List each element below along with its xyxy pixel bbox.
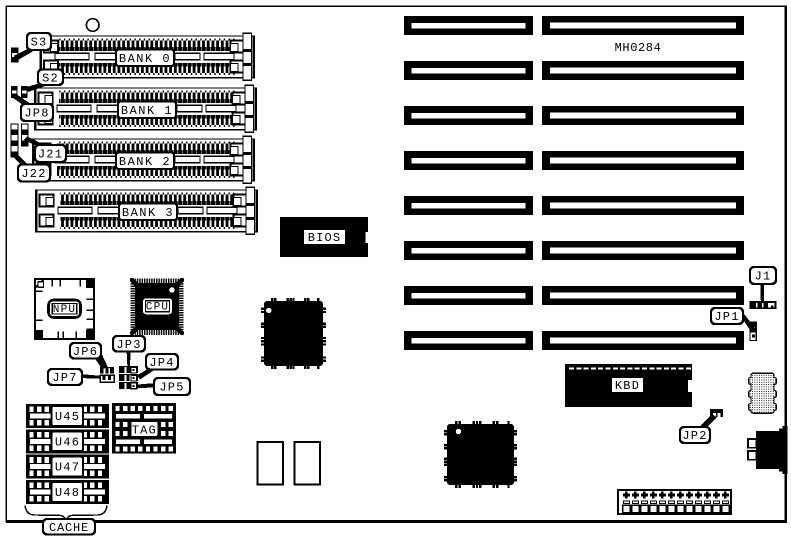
svg-text:J21: J21 [38,148,63,162]
svg-text:JP3: JP3 [116,338,141,352]
svg-text:BIOS: BIOS [308,231,342,245]
svg-text:J22: J22 [21,167,46,181]
svg-text:U47: U47 [55,461,80,475]
svg-text:JP5: JP5 [159,381,184,395]
svg-text:JP2: JP2 [682,429,707,443]
svg-text:CPU: CPU [146,302,169,314]
svg-text:BANK 3: BANK 3 [122,206,174,220]
svg-text:BANK 1: BANK 1 [121,104,173,118]
svg-text:MH0284: MH0284 [615,41,662,55]
svg-text:S3: S3 [31,36,48,50]
svg-text:U46: U46 [55,435,80,449]
svg-text:S2: S2 [42,71,59,85]
svg-text:JP1: JP1 [714,310,739,324]
svg-text:U45: U45 [55,410,80,424]
svg-text:JP7: JP7 [52,371,77,385]
svg-text:KBD: KBD [615,379,640,393]
svg-text:JP4: JP4 [149,356,174,370]
svg-text:J1: J1 [755,270,772,284]
svg-text:TAG: TAG [132,423,157,437]
svg-text:BANK 2: BANK 2 [119,155,171,169]
svg-text:JP6: JP6 [73,345,98,359]
svg-text:U48: U48 [55,486,80,500]
svg-text:BANK 0: BANK 0 [119,52,171,66]
svg-text:CACHE: CACHE [49,521,89,535]
svg-text:JP8: JP8 [24,107,49,121]
svg-text:NPU: NPU [53,304,76,316]
